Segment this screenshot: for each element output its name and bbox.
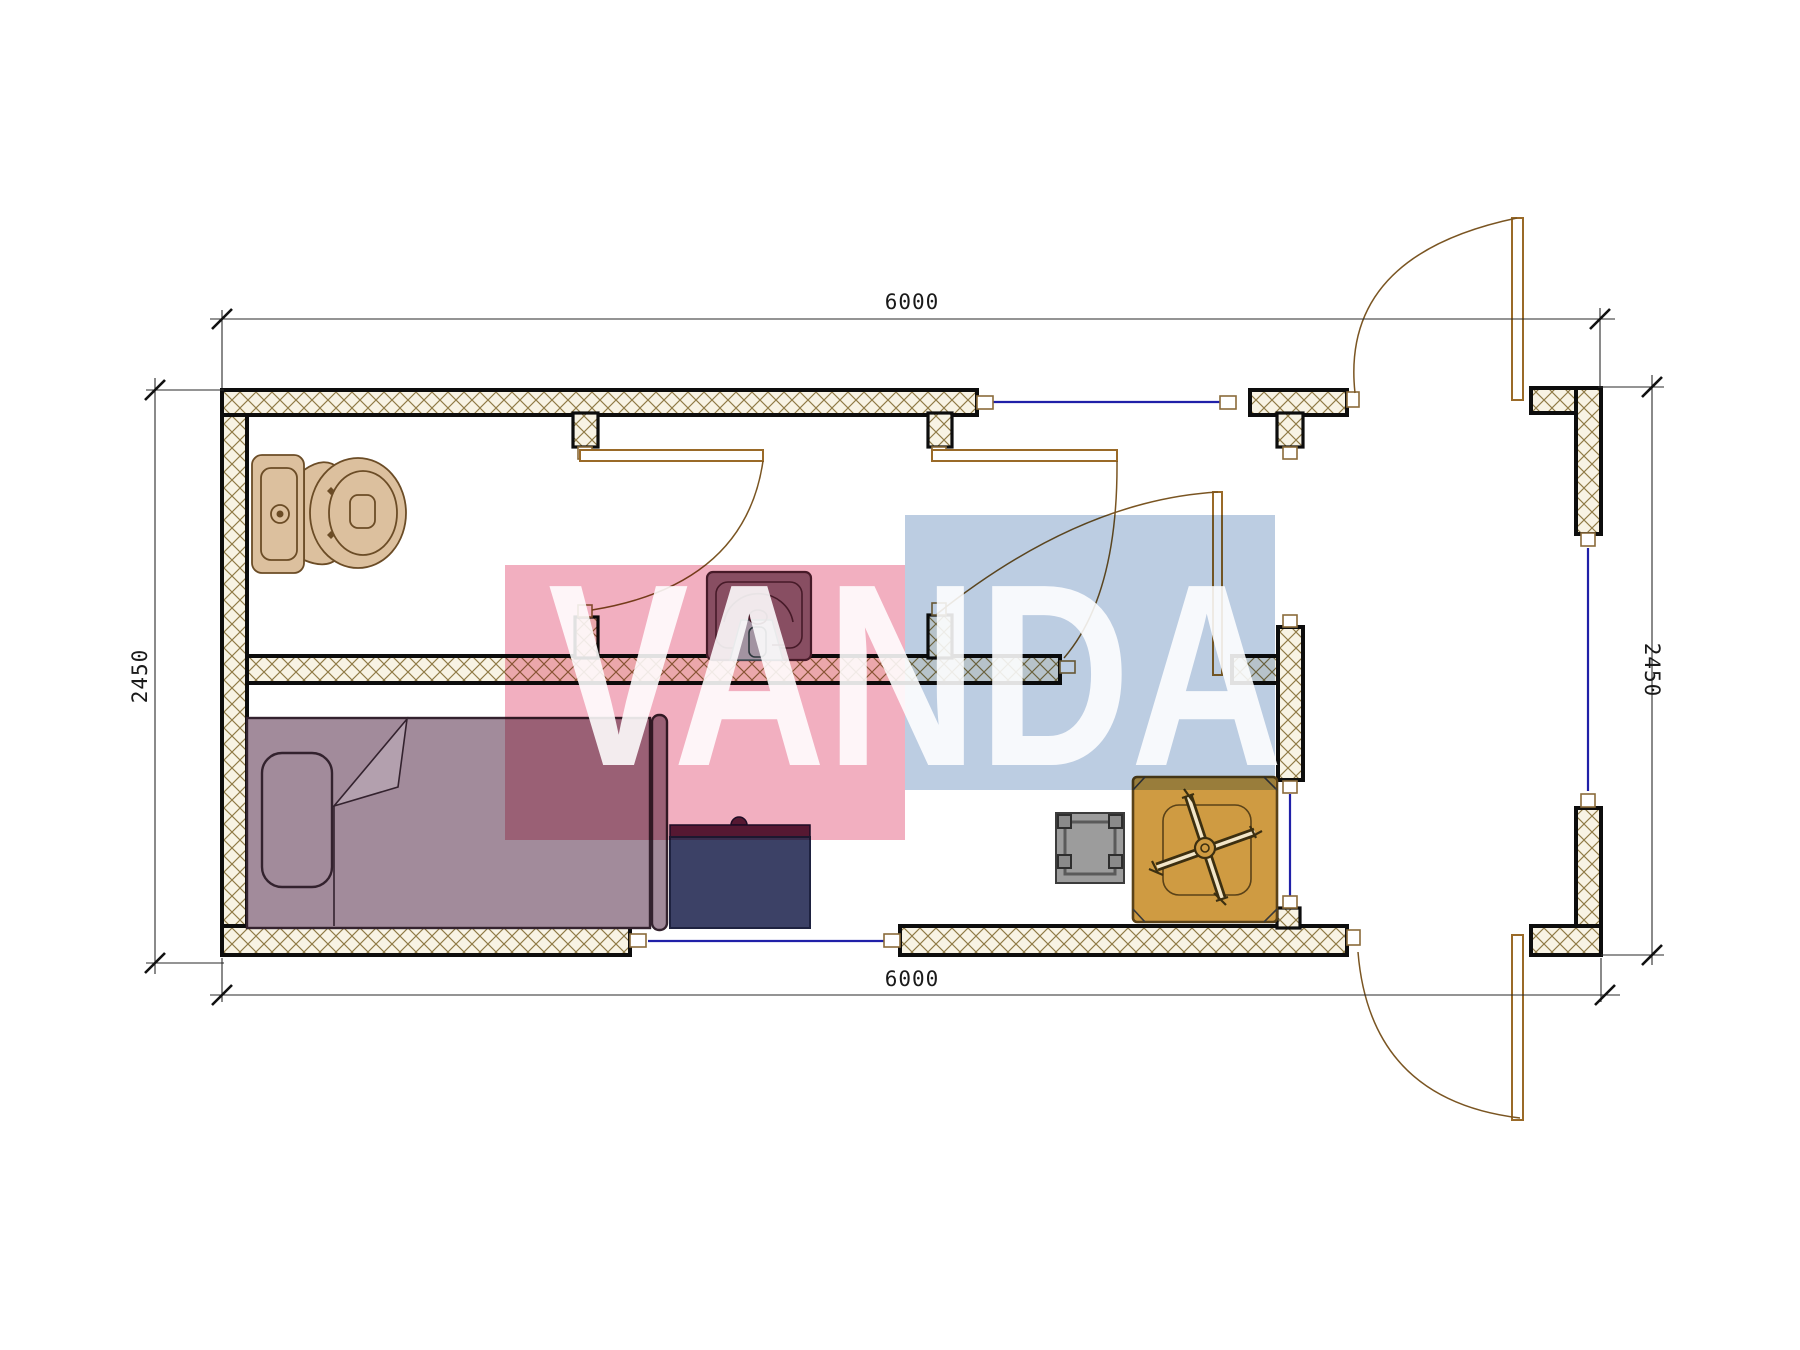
stub-hall-partition — [928, 413, 952, 447]
door-jamb — [1347, 930, 1360, 945]
window-jamb — [977, 396, 993, 409]
door-leaf-entry-bottom — [1512, 935, 1523, 1120]
door-leaf-entry-top — [1512, 218, 1523, 400]
stub-bottom-wall — [1277, 908, 1300, 928]
wall-bottom-middle — [900, 926, 1347, 955]
wall-bottom-left — [222, 926, 630, 955]
door-jamb — [1283, 447, 1297, 459]
window-jamb — [1581, 794, 1595, 807]
stub-entry-partition — [1277, 413, 1303, 447]
toilet-drain — [350, 495, 375, 528]
toilet — [252, 455, 406, 573]
window-jamb — [630, 934, 646, 947]
wall-bottom-right-horizontal — [1531, 926, 1601, 955]
window-jamb — [884, 934, 900, 947]
watermark: VANDA — [505, 515, 1283, 840]
wall-top-right-vertical — [1576, 388, 1601, 534]
dim-label-top: 6000 — [885, 290, 940, 314]
stub-toilet-partition — [573, 413, 598, 447]
door-leaf-hall — [932, 450, 1117, 461]
window-jamb — [1283, 896, 1297, 908]
watermark-text: VANDA — [548, 531, 1283, 821]
wall-left — [222, 390, 247, 955]
wall-top-left — [222, 390, 977, 415]
toilet-flush-dot — [277, 511, 284, 518]
window-jamb — [1581, 533, 1595, 546]
floor-plan-page: 6000 6000 2450 2450 VANDA — [0, 0, 1800, 1350]
door-swing-entry-top — [1354, 218, 1517, 393]
dim-extension — [146, 390, 224, 963]
door-leaf-toilet — [580, 450, 763, 461]
door-jamb — [1283, 615, 1297, 627]
wall-top-middle — [1250, 390, 1347, 415]
door-jamb — [1347, 392, 1359, 407]
desk-body — [670, 837, 810, 928]
bed-pillow — [262, 753, 332, 887]
door-swing-entry-bottom — [1358, 952, 1520, 1118]
dim-label-bottom: 6000 — [885, 967, 940, 991]
stool — [1056, 813, 1124, 883]
dim-label-left: 2450 — [128, 649, 152, 704]
window-jamb — [1220, 396, 1236, 409]
window-jamb — [1283, 781, 1297, 793]
dim-label-right: 2450 — [1640, 643, 1664, 698]
dim-extension — [222, 308, 1600, 388]
floor-plan-drawing: 6000 6000 2450 2450 VANDA — [0, 0, 1800, 1350]
